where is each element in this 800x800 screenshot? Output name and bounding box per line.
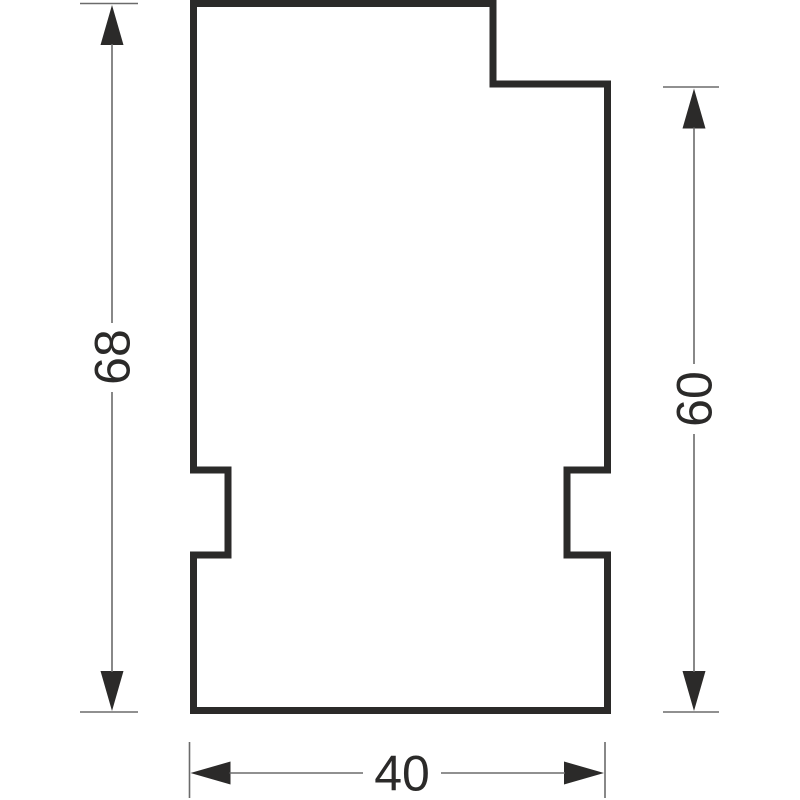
dimension-right-arrowhead-up-icon: [683, 89, 706, 129]
dimension-bottom-label: 40: [374, 746, 430, 800]
dimension-left: 68: [80, 4, 141, 713]
dimension-bottom-arrowhead-right-icon: [564, 762, 604, 785]
dimension-left-arrowhead-down-icon: [101, 671, 124, 711]
dimension-bottom-arrowhead-left-icon: [191, 762, 231, 785]
technical-drawing: 68 60 40: [0, 0, 800, 800]
part-outline-shape: [194, 4, 608, 711]
dimension-right: 60: [663, 87, 723, 712]
dimension-right-arrowhead-down-icon: [683, 671, 706, 711]
dimension-left-label: 68: [85, 329, 141, 385]
dimension-bottom: 40: [190, 742, 606, 800]
dimension-left-arrowhead-up-icon: [101, 5, 124, 45]
dimension-right-label: 60: [667, 371, 723, 427]
